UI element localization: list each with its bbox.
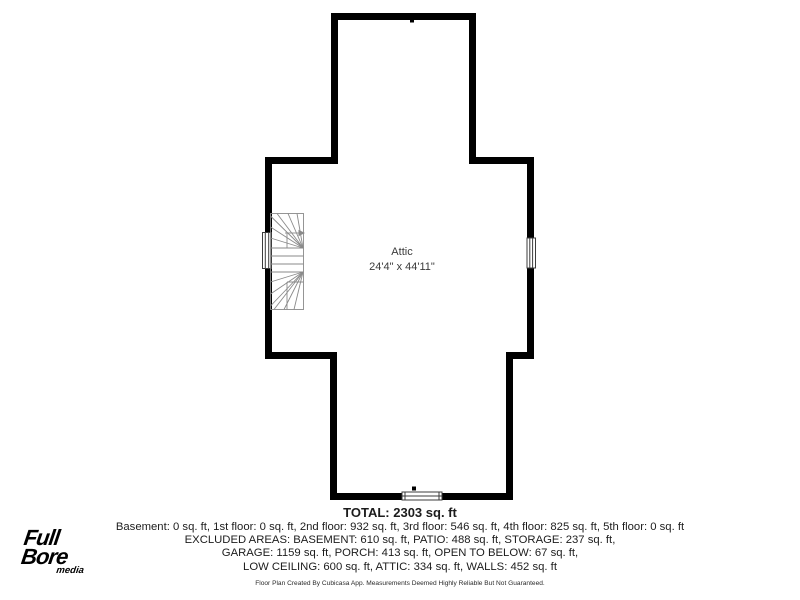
total-area: TOTAL: 2303 sq. ft [0,505,800,520]
floors-areas: Basement: 0 sq. ft, 1st floor: 0 sq. ft,… [0,521,800,534]
top-wall-tick [410,19,414,23]
floor-plan-page: Attic 24'4" x 44'11" TOTAL: 2303 sq. ft … [0,0,800,600]
area-summary: TOTAL: 2303 sq. ft Basement: 0 sq. ft, 1… [0,505,800,588]
excluded-areas-line2: GARAGE: 1159 sq. ft, PORCH: 413 sq. ft, … [0,547,800,560]
winder-staircase-icon [271,214,306,310]
window-symbol-right [527,238,536,268]
disclaimer-text: Floor Plan Created By Cubicasa App. Meas… [0,580,800,588]
room-label: Attic 24'4" x 44'11" [302,245,502,275]
excluded-areas-line3: LOW CEILING: 600 sq. ft, ATTIC: 334 sq. … [0,561,800,574]
fullbore-media-logo: Full Bore media [19,528,90,576]
logo-word-bore: Bore [20,547,87,566]
logo-word-media: media [56,566,85,576]
window-symbol-bottom [402,492,442,500]
bottom-wall-tick [412,487,416,491]
room-dimensions: 24'4" x 44'11" [302,260,502,275]
excluded-areas-line1: EXCLUDED AREAS: BASEMENT: 610 sq. ft, PA… [0,534,800,547]
stair-direction-arrow-icon [299,230,306,236]
room-name: Attic [302,245,502,260]
